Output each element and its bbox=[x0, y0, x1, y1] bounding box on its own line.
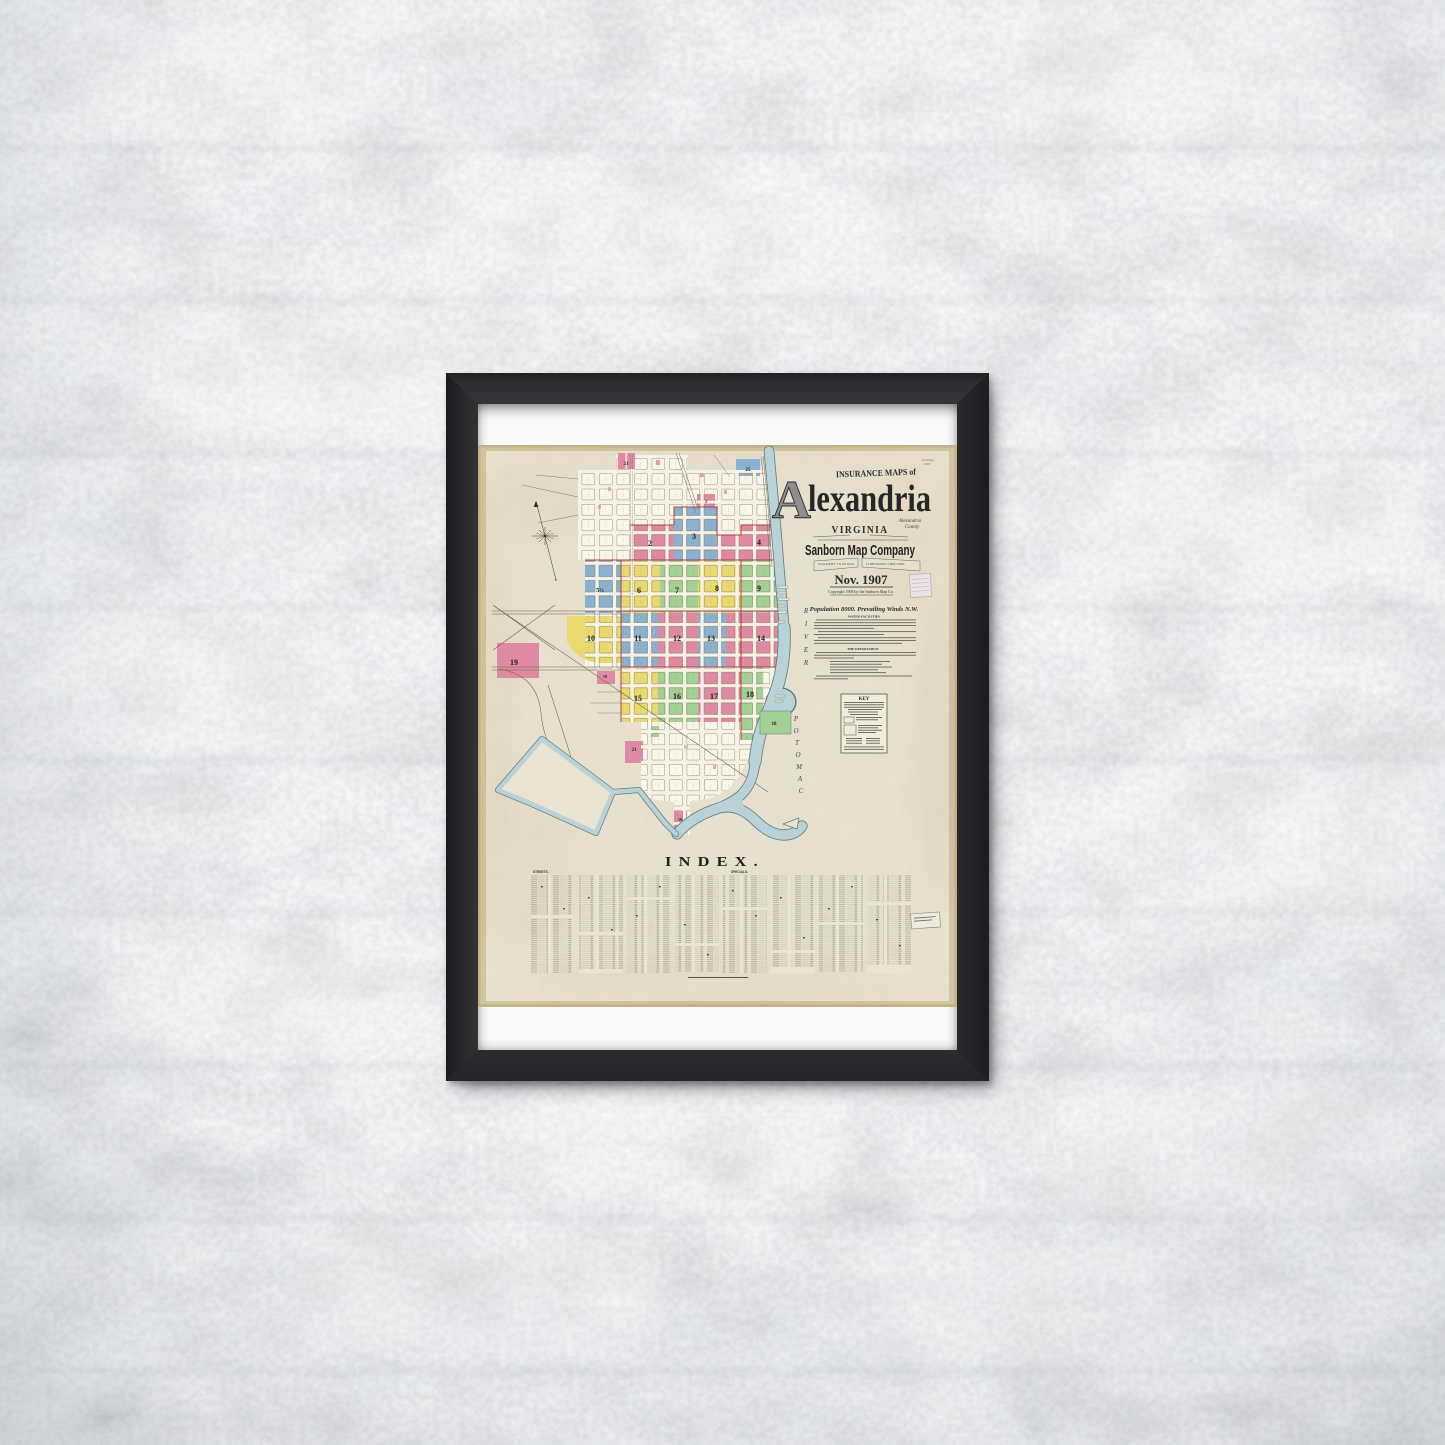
svg-text:O: O bbox=[795, 751, 800, 759]
svg-text:5½: 5½ bbox=[596, 587, 604, 594]
svg-text:WATER FACILITIES: WATER FACILITIES bbox=[848, 615, 880, 619]
svg-text:R: R bbox=[803, 659, 809, 667]
svg-text:P: P bbox=[793, 715, 799, 723]
svg-text:Sanborn Map Company: Sanborn Map Company bbox=[805, 542, 915, 559]
svg-text:19: 19 bbox=[510, 658, 518, 667]
svg-text:R: R bbox=[803, 607, 809, 615]
svg-text:M: M bbox=[795, 763, 803, 771]
svg-text:13: 13 bbox=[707, 634, 715, 643]
svg-text:C: C bbox=[799, 787, 804, 795]
svg-text:SPECIALS.: SPECIALS. bbox=[731, 870, 748, 874]
svg-text:2: 2 bbox=[705, 499, 707, 504]
svg-text:6: 6 bbox=[637, 586, 641, 595]
svg-text:16: 16 bbox=[673, 692, 681, 701]
svg-text:Copyright 1908 by the Sanborn: Copyright 1908 by the Sanborn Map Co. bbox=[828, 589, 893, 594]
svg-text:10: 10 bbox=[587, 634, 595, 643]
svg-text:18: 18 bbox=[772, 722, 778, 727]
svg-text:Nov. 1907: Nov. 1907 bbox=[835, 572, 888, 587]
svg-text:11 BROADWAY, NEW YORK: 11 BROADWAY, NEW YORK bbox=[866, 562, 905, 566]
svg-text:9: 9 bbox=[757, 584, 761, 593]
svg-text:8: 8 bbox=[715, 584, 719, 593]
svg-text:Population 8000. Prevailing Wi: Population 8000. Prevailing Winds N.W. bbox=[810, 606, 919, 613]
svg-text:SCALE 50FT. TO AN INCH: SCALE 50FT. TO AN INCH bbox=[818, 562, 854, 566]
svg-text:INDEX.: INDEX. bbox=[665, 854, 765, 869]
svg-text:lexandria: lexandria bbox=[808, 478, 931, 520]
svg-text:THE DEPARTMENT: THE DEPARTMENT bbox=[847, 647, 879, 651]
svg-text:12: 12 bbox=[673, 634, 681, 643]
svg-text:3: 3 bbox=[692, 532, 696, 541]
svg-text:KEY: KEY bbox=[859, 697, 870, 702]
svg-text:O: O bbox=[793, 727, 798, 735]
svg-text:County: County bbox=[905, 525, 920, 530]
svg-text:V: V bbox=[804, 633, 809, 641]
svg-text:11: 11 bbox=[634, 634, 642, 643]
svg-text:18: 18 bbox=[746, 690, 754, 699]
svg-text:25: 25 bbox=[746, 468, 752, 473]
svg-text:E: E bbox=[803, 646, 809, 654]
svg-text:A: A bbox=[797, 775, 803, 783]
svg-text:1907: 1907 bbox=[924, 462, 931, 466]
svg-text:STREETS.: STREETS. bbox=[533, 870, 549, 874]
svg-text:A: A bbox=[772, 470, 811, 530]
svg-text:21: 21 bbox=[632, 748, 638, 753]
svg-text:19: 19 bbox=[678, 817, 682, 822]
svg-text:4: 4 bbox=[757, 538, 761, 547]
svg-text:15: 15 bbox=[634, 694, 642, 703]
svg-text:Alexandria: Alexandria bbox=[898, 519, 922, 524]
svg-text:7: 7 bbox=[675, 586, 679, 595]
svg-text:14: 14 bbox=[757, 634, 765, 643]
svg-text:17: 17 bbox=[710, 692, 718, 701]
svg-text:21: 21 bbox=[624, 462, 630, 467]
svg-text:VIRGINIA: VIRGINIA bbox=[832, 525, 889, 536]
svg-text:19: 19 bbox=[603, 674, 607, 679]
svg-text:2: 2 bbox=[648, 539, 652, 548]
